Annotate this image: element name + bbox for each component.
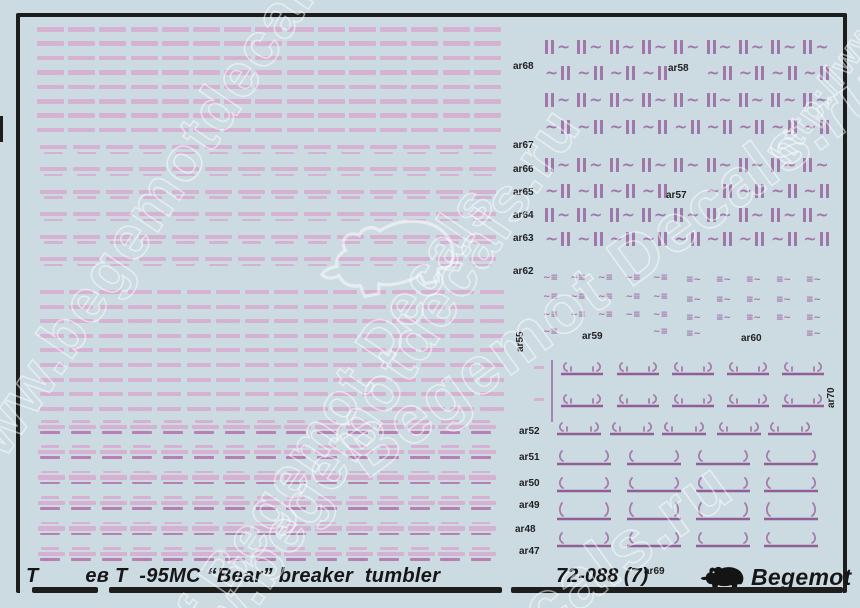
arrow-decal: ∼≡ <box>543 328 558 337</box>
stencil-mark <box>438 522 465 536</box>
stencil-mark <box>450 378 474 382</box>
arrow-decal: ∼≡ <box>598 293 613 302</box>
stencil-mark <box>392 407 416 411</box>
stencil-mark <box>469 420 496 434</box>
stencil-mark <box>474 85 501 90</box>
stencil-mark <box>238 257 265 266</box>
stencil-mark <box>157 392 181 396</box>
stencil-mark <box>333 319 357 323</box>
stencil-mark <box>238 167 265 176</box>
decal-label-ar60: ar60 <box>741 334 762 344</box>
bracket-decal <box>626 450 682 471</box>
stencil-mark <box>172 257 199 266</box>
switch-decal: ∼ <box>610 158 635 172</box>
bracket-decal <box>695 532 751 553</box>
stencil-mark <box>99 348 123 352</box>
stencil-mark <box>436 235 463 244</box>
stencil-mark <box>370 190 397 199</box>
stencil-mark <box>69 319 93 323</box>
stencil-mark <box>172 167 199 176</box>
stencil-mark <box>474 56 501 61</box>
stencil-mark <box>377 420 404 434</box>
switch-decal: ∼ <box>707 158 732 172</box>
stencil-mark <box>99 113 126 118</box>
stencil-mark <box>255 113 282 118</box>
stencil-mark <box>223 547 250 561</box>
divider-line <box>551 360 553 422</box>
stencil-mark <box>318 56 345 61</box>
stencil-mark <box>245 348 269 352</box>
stencil-mark <box>193 113 220 118</box>
stencil-mark <box>411 99 438 104</box>
stencil-mark <box>128 407 152 411</box>
stencil-mark <box>68 56 95 61</box>
bracket-decal <box>556 422 602 441</box>
stencil-mark <box>287 56 314 61</box>
stencil-mark <box>245 290 269 294</box>
stencil-mark <box>245 319 269 323</box>
decal-label-ar50: ar50 <box>519 479 540 489</box>
arrow-decal: ≡∼ <box>806 330 821 339</box>
stencil-mark <box>403 190 430 199</box>
switch-decal: ∼ <box>739 66 764 80</box>
stencil-mark <box>245 305 269 309</box>
decal-label-ar68: ar68 <box>513 62 534 72</box>
stencil-mark <box>380 27 407 32</box>
stencil-mark <box>139 190 166 199</box>
stencil-mark <box>474 99 501 104</box>
stencil-mark <box>162 56 189 61</box>
switch-decal: ∼ <box>642 158 667 172</box>
stencil-mark <box>69 290 93 294</box>
arrow-decal: ∼≡ <box>543 311 558 320</box>
stencil-mark <box>99 70 126 75</box>
stencil-mark <box>337 167 364 176</box>
stencil-mark <box>187 378 211 382</box>
stencil-mark <box>315 522 342 536</box>
stencil-mark <box>534 366 544 369</box>
arrow-decal: ≡∼ <box>686 314 701 323</box>
stencil-mark <box>37 99 64 104</box>
stencil-mark <box>284 547 311 561</box>
stencil-mark <box>469 190 496 199</box>
switch-decal: ∼ <box>545 208 570 222</box>
stencil-mark <box>99 319 123 323</box>
stencil-mark <box>443 27 470 32</box>
switch-decal: ∼ <box>707 66 732 80</box>
stencil-mark <box>193 70 220 75</box>
arrow-decal: ∼≡ <box>626 274 641 283</box>
stencil-mark <box>304 145 331 154</box>
stencil-mark <box>68 41 95 46</box>
stencil-mark <box>403 145 430 154</box>
stencil-mark <box>392 305 416 309</box>
stencil-mark <box>271 145 298 154</box>
stencil-mark <box>131 99 158 104</box>
stencil-mark <box>411 113 438 118</box>
stencil-mark <box>187 319 211 323</box>
stencil-mark <box>315 445 342 459</box>
stencil-mark <box>205 235 232 244</box>
stencil-mark <box>362 348 386 352</box>
stencil-mark <box>238 235 265 244</box>
stencil-mark <box>469 547 496 561</box>
stencil-mark <box>421 407 445 411</box>
arrow-decal: ≡∼ <box>716 314 731 323</box>
stencil-mark <box>37 113 64 118</box>
stencil-mark <box>362 334 386 338</box>
bracket-decal <box>767 422 813 441</box>
bracket-decal <box>695 477 751 498</box>
stencil-mark <box>128 305 152 309</box>
stencil-mark <box>157 334 181 338</box>
stencil-mark <box>131 56 158 61</box>
decal-layer: ∼∼∼∼∼∼∼∼∼∼∼∼∼∼∼∼∼∼∼∼∼∼∼∼∼∼∼∼∼∼∼∼∼∼∼∼∼∼∼∼… <box>0 0 860 608</box>
switch-decal: ∼ <box>674 208 699 222</box>
stencil-mark <box>304 334 328 338</box>
stencil-mark <box>271 167 298 176</box>
arrow-decal: ≡∼ <box>686 330 701 339</box>
stencil-mark <box>205 145 232 154</box>
stencil-mark <box>284 496 311 510</box>
stencil-mark <box>224 99 251 104</box>
arrow-decal: ≡∼ <box>776 276 791 285</box>
stencil-mark <box>443 85 470 90</box>
stencil-mark <box>411 41 438 46</box>
stencil-mark <box>73 212 100 221</box>
stencil-mark <box>337 235 364 244</box>
switch-decal: ∼ <box>577 232 602 246</box>
stencil-mark <box>68 99 95 104</box>
stencil-mark <box>245 378 269 382</box>
stencil-mark <box>73 145 100 154</box>
stencil-mark <box>469 212 496 221</box>
stencil-mark <box>421 348 445 352</box>
bracket-decal <box>626 532 682 553</box>
arrow-decal: ≡∼ <box>686 296 701 305</box>
stencil-mark <box>438 471 465 485</box>
decal-label-ar67: ar67 <box>513 141 534 151</box>
stencil-mark <box>99 27 126 32</box>
stencil-mark <box>38 522 65 536</box>
stencil-mark <box>349 70 376 75</box>
stencil-mark <box>304 212 331 221</box>
stencil-mark <box>315 471 342 485</box>
switch-decal: ∼ <box>642 40 667 54</box>
stencil-mark <box>40 319 64 323</box>
stencil-mark <box>255 99 282 104</box>
stencil-mark <box>421 305 445 309</box>
stencil-mark <box>69 407 93 411</box>
stencil-mark <box>443 99 470 104</box>
switch-decal: ∼ <box>803 208 828 222</box>
bracket-decal <box>763 502 819 526</box>
stencil-mark <box>216 348 240 352</box>
switch-decal: ∼ <box>577 184 602 198</box>
stencil-mark <box>474 41 501 46</box>
stencil-mark <box>436 257 463 266</box>
stencil-mark <box>37 41 64 46</box>
switch-decal: ∼ <box>610 40 635 54</box>
stencil-mark <box>318 128 345 133</box>
stencil-mark <box>304 305 328 309</box>
stencil-mark <box>474 113 501 118</box>
stencil-mark <box>480 334 504 338</box>
stencil-mark <box>254 522 281 536</box>
stencil-mark <box>333 407 357 411</box>
stencil-mark <box>73 235 100 244</box>
stencil-mark <box>68 70 95 75</box>
switch-decal: ∼ <box>674 232 699 246</box>
bracket-decal <box>616 362 660 381</box>
switch-decal: ∼ <box>577 120 602 134</box>
stencil-mark <box>333 363 357 367</box>
stencil-mark <box>370 235 397 244</box>
stencil-mark <box>450 392 474 396</box>
stencil-mark <box>38 445 65 459</box>
switch-decal: ∼ <box>577 208 602 222</box>
bracket-decal <box>726 362 770 381</box>
stencil-mark <box>315 496 342 510</box>
stencil-mark <box>99 290 123 294</box>
switch-decal: ∼ <box>771 40 796 54</box>
stencil-mark <box>187 334 211 338</box>
stencil-mark <box>287 113 314 118</box>
stencil-mark <box>337 145 364 154</box>
stencil-mark <box>392 392 416 396</box>
stencil-mark <box>370 167 397 176</box>
stencil-mark <box>139 167 166 176</box>
stencil-mark <box>216 305 240 309</box>
stencil-mark <box>193 56 220 61</box>
stencil-mark <box>346 445 373 459</box>
stencil-mark <box>100 420 127 434</box>
stencil-mark <box>436 145 463 154</box>
switch-decal: ∼ <box>642 120 667 134</box>
stencil-mark <box>187 305 211 309</box>
stencil-mark <box>100 471 127 485</box>
stencil-mark <box>346 547 373 561</box>
stencil-mark <box>438 445 465 459</box>
stencil-mark <box>377 471 404 485</box>
stencil-mark <box>245 334 269 338</box>
stencil-mark <box>187 363 211 367</box>
switch-decal: ∼ <box>771 184 796 198</box>
stencil-mark <box>73 190 100 199</box>
stencil-mark <box>438 496 465 510</box>
stencil-mark <box>130 522 157 536</box>
switch-decal: ∼ <box>739 184 764 198</box>
stencil-mark <box>68 128 95 133</box>
stencil-mark <box>172 145 199 154</box>
stencil-mark <box>408 496 435 510</box>
stencil-mark <box>99 392 123 396</box>
stencil-mark <box>380 56 407 61</box>
stencil-mark <box>349 99 376 104</box>
stencil-mark <box>474 70 501 75</box>
stencil-mark <box>304 235 331 244</box>
stencil-mark <box>69 334 93 338</box>
stencil-mark <box>216 290 240 294</box>
stencil-mark <box>69 547 96 561</box>
stencil-mark <box>69 363 93 367</box>
stencil-mark <box>271 235 298 244</box>
switch-decal: ∼ <box>771 93 796 107</box>
decal-label-ar51: ar51 <box>519 453 540 463</box>
stencil-mark <box>304 290 328 294</box>
stencil-mark <box>100 547 127 561</box>
switch-decal: ∼ <box>610 120 635 134</box>
switch-decal: ∼ <box>803 93 828 107</box>
stencil-mark <box>284 471 311 485</box>
stencil-mark <box>40 334 64 338</box>
decal-sheet-scan: ∼∼∼∼∼∼∼∼∼∼∼∼∼∼∼∼∼∼∼∼∼∼∼∼∼∼∼∼∼∼∼∼∼∼∼∼∼∼∼∼… <box>0 0 860 608</box>
stencil-mark <box>349 56 376 61</box>
stencil-mark <box>255 85 282 90</box>
stencil-mark <box>40 257 67 266</box>
stencil-mark <box>480 290 504 294</box>
switch-decal: ∼ <box>739 120 764 134</box>
bracket-decal <box>695 450 751 471</box>
arrow-decal: ≡∼ <box>716 276 731 285</box>
switch-decal: ∼ <box>642 184 667 198</box>
stencil-mark <box>346 496 373 510</box>
stencil-mark <box>421 334 445 338</box>
switch-decal: ∼ <box>610 184 635 198</box>
stencil-mark <box>474 27 501 32</box>
stencil-mark <box>403 212 430 221</box>
arrow-decal: ∼≡ <box>543 274 558 283</box>
stencil-mark <box>99 378 123 382</box>
stencil-mark <box>480 348 504 352</box>
stencil-mark <box>245 363 269 367</box>
stencil-mark <box>172 235 199 244</box>
stencil-mark <box>333 305 357 309</box>
decal-label-ar64: ar64 <box>513 211 534 221</box>
stencil-mark <box>392 334 416 338</box>
stencil-mark <box>287 70 314 75</box>
stencil-mark <box>99 99 126 104</box>
switch-decal: ∼ <box>739 158 764 172</box>
switch-decal: ∼ <box>674 158 699 172</box>
stencil-mark <box>157 348 181 352</box>
stencil-mark <box>157 407 181 411</box>
stencil-mark <box>224 56 251 61</box>
arrow-decal: ≡∼ <box>806 296 821 305</box>
stencil-mark <box>193 99 220 104</box>
stencil-mark <box>287 85 314 90</box>
stencil-mark <box>469 471 496 485</box>
arrow-decal: ≡∼ <box>776 296 791 305</box>
stencil-mark <box>193 128 220 133</box>
stencil-mark <box>216 363 240 367</box>
stencil-mark <box>68 113 95 118</box>
stencil-mark <box>193 85 220 90</box>
stencil-mark <box>40 392 64 396</box>
stencil-mark <box>255 41 282 46</box>
stencil-mark <box>100 522 127 536</box>
stencil-mark <box>450 363 474 367</box>
arrow-decal: ∼≡ <box>571 311 586 320</box>
stencil-mark <box>362 290 386 294</box>
stencil-mark <box>436 212 463 221</box>
stencil-mark <box>469 496 496 510</box>
stencil-mark <box>436 167 463 176</box>
stencil-mark <box>362 363 386 367</box>
stencil-mark <box>274 363 298 367</box>
bracket-decal <box>556 450 612 471</box>
arrow-decal: ∼≡ <box>598 311 613 320</box>
stencil-mark <box>161 420 188 434</box>
stencil-mark <box>408 522 435 536</box>
switch-decal: ∼ <box>803 66 828 80</box>
stencil-mark <box>130 420 157 434</box>
stencil-mark <box>421 363 445 367</box>
bracket-decal <box>556 532 612 553</box>
stencil-mark <box>205 190 232 199</box>
stencil-mark <box>224 27 251 32</box>
switch-decal: ∼ <box>771 232 796 246</box>
stencil-mark <box>411 27 438 32</box>
stencil-mark <box>255 70 282 75</box>
switch-decal: ∼ <box>674 40 699 54</box>
switch-decal: ∼ <box>739 40 764 54</box>
stencil-mark <box>408 471 435 485</box>
stencil-mark <box>37 85 64 90</box>
stencil-mark <box>224 85 251 90</box>
stencil-mark <box>438 547 465 561</box>
stencil-mark <box>304 392 328 396</box>
switch-decal: ∼ <box>545 93 570 107</box>
stencil-mark <box>377 496 404 510</box>
stencil-mark <box>255 56 282 61</box>
stencil-mark <box>131 41 158 46</box>
stencil-mark <box>192 496 219 510</box>
stencil-mark <box>362 319 386 323</box>
stencil-mark <box>162 27 189 32</box>
stencil-mark <box>40 235 67 244</box>
stencil-mark <box>408 547 435 561</box>
stencil-mark <box>68 27 95 32</box>
stencil-mark <box>469 167 496 176</box>
switch-decal: ∼ <box>707 120 732 134</box>
stencil-mark <box>69 471 96 485</box>
decal-label-ar62: ar62 <box>513 267 534 277</box>
stencil-mark <box>450 290 474 294</box>
stencil-mark <box>130 471 157 485</box>
stencil-mark <box>40 212 67 221</box>
stencil-mark <box>99 363 123 367</box>
stencil-mark <box>349 113 376 118</box>
stencil-mark <box>304 348 328 352</box>
stencil-mark <box>40 363 64 367</box>
switch-decal: ∼ <box>642 232 667 246</box>
stencil-mark <box>318 113 345 118</box>
stencil-mark <box>131 27 158 32</box>
stencil-mark <box>443 113 470 118</box>
stencil-mark <box>69 305 93 309</box>
switch-decal: ∼ <box>803 158 828 172</box>
stencil-mark <box>480 319 504 323</box>
stencil-mark <box>38 471 65 485</box>
stencil-mark <box>223 496 250 510</box>
stencil-mark <box>139 257 166 266</box>
stencil-mark <box>157 305 181 309</box>
stencil-mark <box>287 99 314 104</box>
stencil-mark <box>238 212 265 221</box>
switch-decal: ∼ <box>610 93 635 107</box>
switch-decal: ∼ <box>707 40 732 54</box>
